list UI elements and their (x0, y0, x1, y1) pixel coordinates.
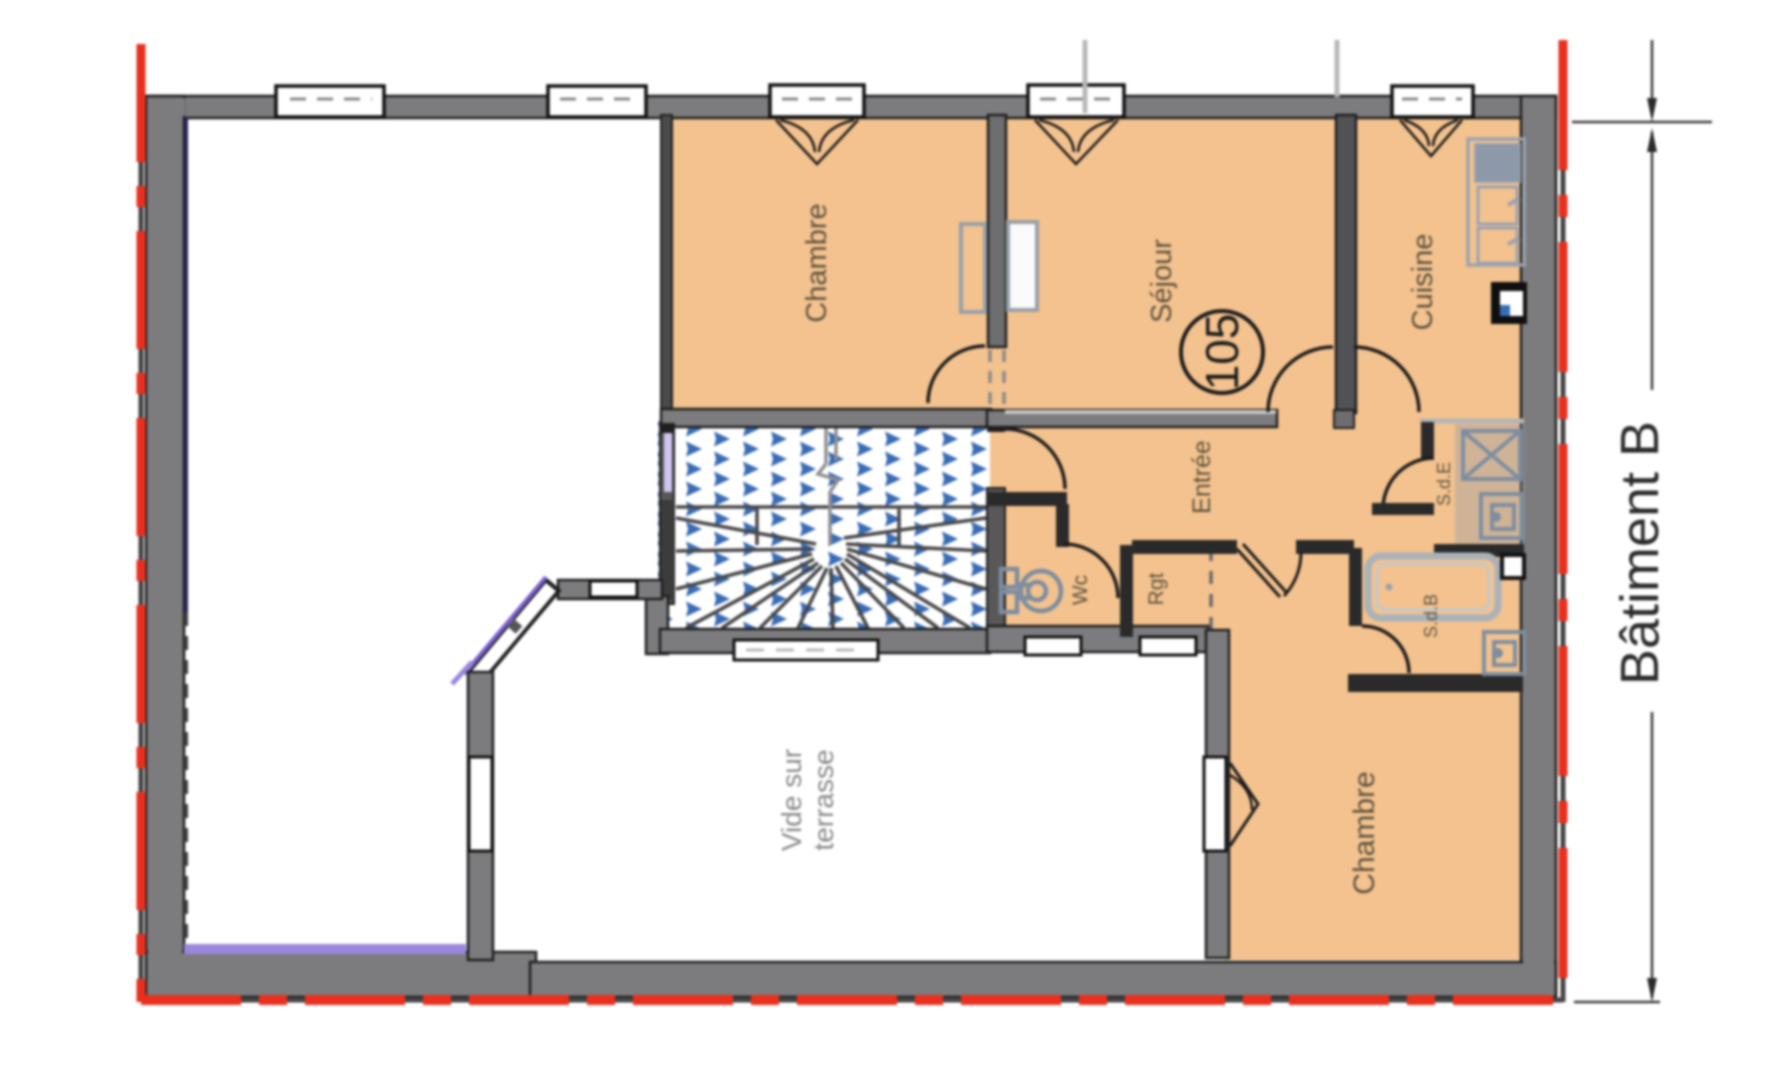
svg-text:S.d.B: S.d.B (1421, 594, 1441, 638)
svg-text:105: 105 (1196, 314, 1248, 391)
svg-text:Séjour: Séjour (1146, 239, 1178, 323)
svg-text:Rgt: Rgt (1145, 572, 1168, 605)
svg-text:Vide sur: Vide sur (776, 749, 807, 851)
svg-text:Cuisine: Cuisine (1407, 234, 1439, 331)
svg-text:terrasse: terrasse (808, 749, 839, 850)
svg-text:Bâtiment B: Bâtiment B (1610, 421, 1670, 685)
svg-text:Wc: Wc (1069, 575, 1092, 605)
svg-text:Chambre: Chambre (801, 203, 833, 322)
svg-text:Chambre: Chambre (1348, 771, 1381, 894)
svg-text:Entrée: Entrée (1188, 440, 1216, 514)
svg-text:S.d.E: S.d.E (1434, 462, 1454, 506)
